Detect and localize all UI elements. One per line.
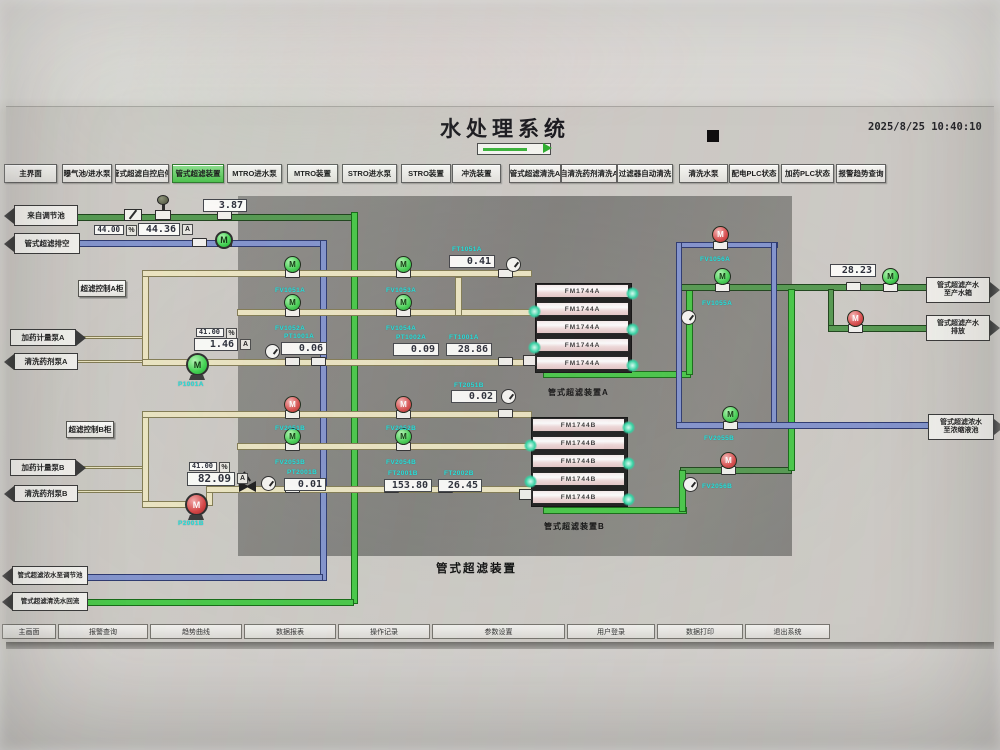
bank-caption: 管式超滤装置B — [544, 521, 605, 532]
pump-P1001A[interactable]: M — [186, 353, 209, 376]
stream-arrow-icon — [2, 594, 12, 610]
footer-button-4[interactable]: 操作记录 — [338, 624, 430, 639]
pipe-blue-17 — [771, 242, 777, 428]
tab-4[interactable]: MTRO进水泵 — [227, 164, 282, 183]
monitor-photo: 水处理系统 2025/8/25 10:40:10 主界面曝气池/进水泵管式超滤自… — [0, 0, 1000, 750]
pipe-yellow-25 — [455, 277, 462, 316]
port-glow-icon — [524, 475, 537, 488]
flow-arrow-icon — [543, 143, 552, 153]
instrument-tag-FV2054B: FV2054B — [386, 459, 416, 466]
membrane-module: FM1744A — [536, 338, 629, 352]
bank-end-cap — [523, 355, 536, 366]
instrument-tag-FV1056A: FV1056A — [700, 256, 730, 263]
unit-chip-3: A — [240, 339, 251, 350]
tab-14[interactable]: 加药PLC状态 — [781, 164, 834, 183]
cabinet-button-B[interactable]: 超滤控制B柜 — [66, 421, 114, 438]
instrument-tag-FV1052A: FV1052A — [275, 325, 305, 332]
tab-15[interactable]: 报警趋势查询 — [836, 164, 886, 183]
stream-label-line: 管式超滤产水 — [937, 282, 979, 290]
pipe-blue-15 — [679, 242, 778, 248]
instrument-tag-PT2001B: PT2001B — [287, 469, 317, 476]
instrument-tag-FT2001B: FT2001B — [388, 470, 418, 477]
valve-product-outlet[interactable]: M — [882, 268, 899, 285]
value-display-28.86: 28.86 — [446, 343, 492, 356]
tab-bar: 主界面曝气池/进水泵管式超滤自控启停管式超滤装置MTRO进水泵MTRO装置STR… — [0, 164, 1000, 185]
membrane-module: FM1744A — [536, 356, 629, 370]
unit-chip-4: % — [219, 462, 230, 473]
stream-label-5: 清洗药剂泵B — [14, 485, 78, 502]
stream-label-line: 管式超滤浓水至调节池 — [18, 572, 83, 580]
membrane-module: FM1744B — [532, 454, 625, 468]
instrument-tag-FV2055B: FV2055B — [704, 435, 734, 442]
port-glow-icon — [524, 439, 537, 452]
value-display-3.87: 3.87 — [203, 199, 247, 212]
pressure-gauge-icon-5 — [683, 477, 698, 492]
stream-label-line: 排放 — [951, 328, 965, 336]
pipe-yellow-28 — [237, 443, 532, 450]
stream-label-9: 管式超滤浓水至调节池 — [12, 566, 88, 585]
instrument-tag-FT1051A: FT1051A — [452, 246, 482, 253]
stream-label-10: 管式超滤清洗水回流 — [12, 592, 88, 611]
value-display-41.00: 41.00 — [196, 328, 224, 337]
stream-label-line: 管式超滤清洗水回流 — [21, 598, 80, 606]
tab-0[interactable]: 主界面 — [4, 164, 57, 183]
pump-feed-booster[interactable]: M — [215, 231, 233, 249]
pipe-bgreen-9 — [788, 289, 795, 471]
stream-arrow-icon — [4, 486, 14, 502]
value-display-0.06: 0.06 — [281, 342, 327, 355]
stream-label-line: 加药计量泵B — [22, 463, 65, 472]
stream-label-line: 加药计量泵A — [22, 333, 65, 342]
stream-label-2: 加药计量泵A — [10, 329, 76, 346]
port-glow-icon — [528, 305, 541, 318]
tab-7[interactable]: STRO装置 — [401, 164, 451, 183]
pipe-yellow-21 — [237, 309, 532, 316]
bank-end-cap — [519, 489, 532, 500]
instrument-tag-PT1002A: PT1002A — [396, 334, 426, 341]
instrument-tag-P1001A: P1001A — [178, 381, 204, 388]
stream-label-7: 管式超滤产水排放 — [926, 315, 990, 341]
pipe-fitting-9 — [192, 238, 207, 247]
value-display-0.02: 0.02 — [451, 390, 497, 403]
valve-FV2055B[interactable]: M — [722, 406, 739, 423]
stream-arrow-icon — [4, 208, 14, 224]
instrument-tag-FV2053B: FV2053B — [275, 459, 305, 466]
membrane-bank-B: FM1744BFM1744BFM1744BFM1744BFM1744B — [531, 417, 628, 507]
pipe-fitting-11 — [217, 211, 232, 220]
tab-3[interactable]: 管式超滤装置 — [172, 164, 224, 183]
stream-arrow-icon — [990, 282, 1000, 298]
tab-9[interactable]: 管式超滤清洗A — [509, 164, 561, 183]
pipe-bgreen-2 — [80, 599, 354, 606]
pipe-blue-18 — [676, 422, 938, 429]
footer-button-8[interactable]: 退出系统 — [745, 624, 830, 639]
pipe-fitting-3 — [498, 357, 513, 366]
stream-arrow-icon — [990, 320, 1000, 336]
stream-arrow-icon — [2, 568, 12, 584]
pipe-green-7 — [828, 325, 938, 332]
pump-P2001B[interactable]: M — [185, 493, 208, 516]
pressure-gauge-icon-2 — [501, 389, 516, 404]
tab-10[interactable]: 自清洗药剂清洗A — [561, 164, 617, 183]
tab-12[interactable]: 清洗水泵 — [679, 164, 728, 183]
value-display-82.09: 82.09 — [187, 472, 235, 486]
membrane-bank-A: FM1744AFM1744AFM1744AFM1744AFM1744A — [535, 283, 632, 373]
unit-chip-5: A — [237, 473, 248, 484]
value-display-153.80: 153.80 — [384, 479, 432, 492]
footer-button-5[interactable]: 参数设置 — [432, 624, 565, 639]
value-display-26.45: 26.45 — [438, 479, 482, 492]
membrane-module: FM1744A — [536, 284, 629, 298]
valve-drain-outlet[interactable]: M — [847, 310, 864, 327]
value-display-1.46: 1.46 — [194, 338, 238, 351]
value-display-44.36: 44.36 — [138, 223, 180, 236]
pipe-yellow-24 — [77, 360, 143, 363]
membrane-module: FM1744B — [532, 418, 625, 432]
pipe-fitting-8 — [846, 282, 861, 291]
value-display-0.09: 0.09 — [393, 343, 439, 356]
valve-FV1054A[interactable]: M — [395, 294, 412, 311]
value-display-0.01: 0.01 — [284, 478, 326, 491]
pressure-gauge-icon-1 — [265, 344, 280, 359]
pipe-bgreen-10 — [543, 507, 687, 514]
instrument-tag-FV1053A: FV1053A — [386, 287, 416, 294]
datetime: 2025/8/25 10:40:10 — [868, 121, 982, 133]
stream-arrow-icon — [4, 354, 14, 370]
value-display-28.23: 28.23 — [830, 264, 876, 277]
pipe-yellow-33 — [77, 490, 143, 493]
port-glow-icon — [622, 493, 635, 506]
page-title: 水处理系统 — [375, 113, 635, 143]
pipe-bgreen-4 — [686, 289, 693, 375]
tab-5[interactable]: MTRO装置 — [287, 164, 338, 183]
stream-label-4: 加药计量泵B — [10, 459, 76, 476]
unit-chip-1: A — [182, 224, 193, 235]
pressure-gauge-icon-4 — [681, 310, 696, 325]
valve-FV2051B[interactable]: M — [284, 396, 301, 413]
stop-square-icon — [707, 130, 719, 142]
valve-FV2056B[interactable]: M — [720, 452, 737, 469]
pipe-yellow-26 — [142, 411, 149, 506]
pipe-fitting-2 — [311, 357, 326, 366]
port-glow-icon — [622, 457, 635, 470]
membrane-module: FM1744B — [532, 436, 625, 450]
pipe-yellow-20 — [142, 270, 532, 277]
valve-FV1053A[interactable]: M — [395, 256, 412, 273]
instrument-tag-FV1054A: FV1054A — [386, 325, 416, 332]
port-glow-icon — [622, 421, 635, 434]
instrument-tag-FV2052B: FV2052B — [386, 425, 416, 432]
pressure-gauge-icon-3 — [261, 476, 276, 491]
instrument-tag-FT2002B: FT2002B — [444, 470, 474, 477]
bank-caption: 管式超滤装置A — [548, 387, 609, 398]
instrument-tag-PT1001A: PT1001A — [284, 333, 314, 340]
value-display-0.41: 0.41 — [449, 255, 495, 268]
instrument-tag-FV2056B: FV2056B — [702, 483, 732, 490]
pressure-gauge-icon-0 — [506, 257, 521, 272]
stream-label-1: 管式超滤排空 — [14, 233, 80, 254]
manual-valve-icon[interactable] — [153, 195, 173, 221]
stream-label-line: 管式超滤产水 — [937, 320, 979, 328]
pipe-fitting-1 — [285, 357, 300, 366]
stream-label-6: 管式超滤产水至产水箱 — [926, 277, 990, 303]
pipe-blue-16 — [676, 242, 682, 428]
membrane-module: FM1744B — [532, 490, 625, 504]
cabinet-button-A[interactable]: 超滤控制A柜 — [78, 280, 126, 297]
unit-chip-0: % — [126, 225, 137, 236]
stream-label-3: 清洗药剂泵A — [14, 353, 78, 370]
valve-FV1051A[interactable]: M — [284, 256, 301, 273]
footer-button-3[interactable]: 数据报表 — [244, 624, 336, 639]
pipe-blue-14 — [85, 574, 323, 581]
stream-arrow-icon — [4, 236, 14, 252]
pipe-green-6 — [828, 289, 834, 329]
stream-arrow-icon — [76, 330, 86, 346]
tab-2[interactable]: 管式超滤自控启停 — [115, 164, 169, 183]
valve-FV1056A[interactable]: M — [712, 226, 729, 243]
tab-8[interactable]: 冲洗装置 — [452, 164, 501, 183]
membrane-module: FM1744B — [532, 472, 625, 486]
membrane-module: FM1744A — [536, 302, 629, 316]
flow-progress-bar — [477, 143, 551, 155]
port-glow-icon — [528, 341, 541, 354]
stream-label-line: 清洗药剂泵B — [25, 489, 68, 498]
port-glow-icon — [626, 323, 639, 336]
stream-arrow-icon — [994, 419, 1000, 435]
pipe-yellow-27 — [142, 411, 532, 418]
footer-button-1[interactable]: 报警查询 — [58, 624, 148, 639]
pipe-fitting-4 — [498, 409, 513, 418]
diagram-title: 管式超滤装置 — [436, 560, 517, 576]
stream-label-line: 清洗药剂泵A — [25, 357, 68, 366]
pipe-green-0 — [77, 214, 353, 221]
footer-button-2[interactable]: 趋势曲线 — [150, 624, 242, 639]
stream-label-line: 至浓缩液池 — [944, 427, 979, 435]
monitor-bezel-edge — [6, 642, 994, 649]
stream-arrow-icon — [76, 460, 86, 476]
instrument-tag-P2001B: P2001B — [178, 520, 204, 527]
tab-1[interactable]: 曝气池/进水泵 — [62, 164, 112, 183]
stream-label-line: 管式超滤浓水 — [940, 419, 982, 427]
value-display-41.00: 41.00 — [189, 462, 217, 471]
stream-label-line: 来自调节池 — [27, 211, 65, 220]
footer-button-0[interactable]: 主画面 — [2, 624, 56, 639]
instrument-tag-FV2051B: FV2051B — [275, 425, 305, 432]
valve-FV2052B[interactable]: M — [395, 396, 412, 413]
pipe-bgreen-11 — [679, 470, 686, 512]
value-display-44.00: 44.00 — [94, 225, 124, 235]
pipe-yellow-23 — [77, 336, 143, 339]
instrument-tag-FV1055A: FV1055A — [702, 300, 732, 307]
stream-label-8: 管式超滤浓水至浓缩液池 — [928, 414, 994, 440]
instrument-tag-FT1001A: FT1001A — [449, 334, 479, 341]
stream-label-0: 来自调节池 — [14, 205, 78, 226]
flow-progress-line — [483, 148, 527, 151]
stream-label-line: 至产水箱 — [944, 290, 972, 298]
pipe-yellow-32 — [77, 466, 143, 469]
unit-chip-2: % — [226, 328, 237, 339]
tab-6[interactable]: STRO进水泵 — [342, 164, 397, 183]
port-glow-icon — [626, 359, 639, 372]
pipe-green-8 — [680, 467, 792, 474]
tab-13[interactable]: 配电PLC状态 — [729, 164, 779, 183]
footer-toolbar: 主画面报警查询趋势曲线数据报表操作记录参数设置用户登录数据打印退出系统 — [2, 624, 998, 641]
check-valve-icon — [124, 209, 142, 221]
footer-button-7[interactable]: 数据打印 — [657, 624, 743, 639]
stream-label-line: 管式超滤排空 — [25, 239, 70, 248]
pipe-yellow-19 — [142, 270, 149, 365]
port-glow-icon — [626, 287, 639, 300]
valve-FV1055A[interactable]: M — [714, 268, 731, 285]
footer-button-6[interactable]: 用户登录 — [567, 624, 655, 639]
membrane-module: FM1744A — [536, 320, 629, 334]
tab-11[interactable]: 过滤器自动清洗 — [617, 164, 673, 183]
instrument-tag-FV1051A: FV1051A — [275, 287, 305, 294]
instrument-tag-FT2051B: FT2051B — [454, 382, 484, 389]
valve-FV1052A[interactable]: M — [284, 294, 301, 311]
